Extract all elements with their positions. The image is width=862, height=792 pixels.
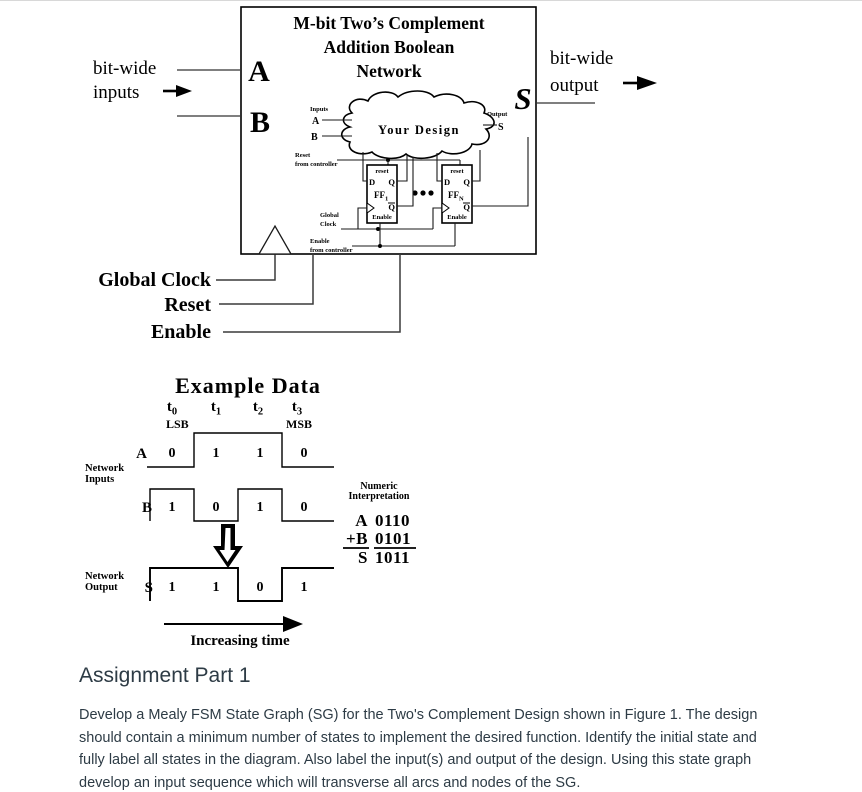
example-data-title: Example Data: [175, 373, 321, 398]
time-axis-labels: t0 t1 t2 t3: [167, 399, 302, 418]
network-inputs-caption-line1: Network: [85, 463, 124, 474]
port-a-label: A: [248, 55, 270, 88]
increasing-time-label: Increasing time: [190, 633, 290, 649]
block-title-line3: Network: [356, 61, 421, 81]
signal-s-label: S: [145, 580, 153, 596]
inner-output-s: S: [498, 122, 504, 133]
network-inputs-caption-line2: Inputs: [85, 474, 114, 485]
inner-clock-caption-line1: Global: [320, 212, 339, 219]
signal-a-label: A: [136, 446, 147, 462]
wave-value-B-2: 1: [257, 500, 264, 515]
ffn-d-label: D: [444, 177, 450, 187]
global-clock-wire: [216, 254, 275, 280]
numeric-title-line2: Interpretation: [349, 491, 410, 502]
bitwide-output-line1: bit-wide: [550, 48, 613, 69]
wave-value-A-1: 1: [213, 446, 220, 461]
enable-wire: [223, 254, 400, 332]
msb-label: MSB: [286, 417, 312, 431]
inner-enable-caption-line2: from controller: [310, 247, 353, 254]
ff1-reset-label: reset: [375, 168, 389, 175]
numeric-interpretation: Numeric Interpretation A 0110 +B 0101 S …: [343, 481, 416, 567]
waveform-A: A 0110: [136, 433, 334, 467]
network-output-caption-line1: Network: [85, 571, 124, 582]
flipflop-ff1: reset D Q FF1 Q Enable: [367, 165, 397, 223]
input-direction-arrow-icon: [163, 85, 192, 97]
time-label-0: t0: [167, 399, 177, 418]
wave-value-A-2: 1: [257, 446, 264, 461]
wave-value-S-2: 0: [257, 580, 264, 595]
wave-value-A-3: 0: [301, 446, 308, 461]
port-b-label: B: [250, 106, 270, 139]
assignment-page: M-bit Two’s Complement Addition Boolean …: [0, 0, 862, 792]
network-output-caption-line2: Output: [85, 582, 118, 593]
wave-value-S-3: 1: [301, 580, 308, 595]
wave-value-A-0: 0: [169, 446, 176, 461]
down-arrow-icon: [213, 524, 243, 568]
numeric-row-a-value: 0110: [375, 511, 410, 530]
waveform-S: S 1101: [145, 568, 334, 601]
numeric-row-a-label: A: [355, 511, 368, 530]
output-direction-arrow-icon: [623, 76, 657, 90]
assignment-body: Develop a Mealy FSM State Graph (SG) for…: [79, 704, 779, 792]
time-label-2: t2: [253, 399, 263, 418]
flipflop-ffn: reset D Q FFN Q Enable: [442, 165, 472, 223]
your-design-label: Your Design: [378, 123, 460, 137]
reset-wire: [219, 254, 313, 304]
waveform-B: B 1010: [142, 489, 334, 521]
block-title-line2: Addition Boolean: [324, 37, 455, 57]
inner-input-a: A: [312, 116, 320, 127]
bitwide-inputs-line2: inputs: [93, 82, 139, 103]
wave-value-B-1: 0: [213, 500, 220, 515]
ellipsis-dots: [412, 190, 433, 195]
ff1-enable-label: Enable: [372, 214, 392, 221]
assignment-heading: Assignment Part 1: [79, 663, 779, 688]
ffn-q-label: Q: [463, 177, 470, 187]
numeric-row-s-value: 1011: [375, 548, 410, 567]
lsb-label: LSB: [166, 417, 189, 431]
time-label-3: t3: [292, 399, 302, 418]
bitwide-inputs-line1: bit-wide: [93, 58, 156, 79]
inner-reset-caption-line1: Reset: [295, 152, 311, 159]
ff1-d-label: D: [369, 177, 375, 187]
enable-label: Enable: [151, 321, 211, 343]
block-title-line1: M-bit Two’s Complement: [293, 13, 484, 33]
inner-output-caption: Output: [487, 111, 508, 118]
numeric-row-b-value: 0101: [375, 529, 411, 548]
increasing-time-arrow-icon: [164, 616, 303, 632]
numeric-row-s-label: S: [358, 548, 368, 567]
inner-input-b: B: [311, 132, 318, 143]
time-label-1: t1: [211, 399, 221, 418]
global-clock-label: Global Clock: [98, 269, 212, 291]
inner-clock-caption-line2: Clock: [320, 221, 337, 228]
wave-value-B-0: 1: [169, 500, 176, 515]
bitwide-output-line2: output: [550, 75, 599, 96]
wave-value-S-0: 1: [169, 580, 176, 595]
ff1-q-label: Q: [388, 177, 395, 187]
port-s-label: S: [514, 81, 531, 116]
ffn-enable-label: Enable: [447, 214, 467, 221]
inner-reset-caption-line2: from controller: [295, 161, 338, 168]
assignment-section: Assignment Part 1 Develop a Mealy FSM St…: [79, 663, 779, 792]
figure-1: M-bit Two’s Complement Addition Boolean …: [0, 1, 862, 661]
inner-inputs-caption: Inputs: [310, 106, 329, 113]
wave-value-B-3: 0: [301, 500, 308, 515]
ffn-reset-label: reset: [450, 168, 464, 175]
reset-label: Reset: [164, 294, 211, 316]
inner-enable-caption-line1: Enable: [310, 238, 330, 245]
wave-value-S-1: 1: [213, 580, 220, 595]
numeric-row-b-label: +B: [346, 529, 368, 548]
